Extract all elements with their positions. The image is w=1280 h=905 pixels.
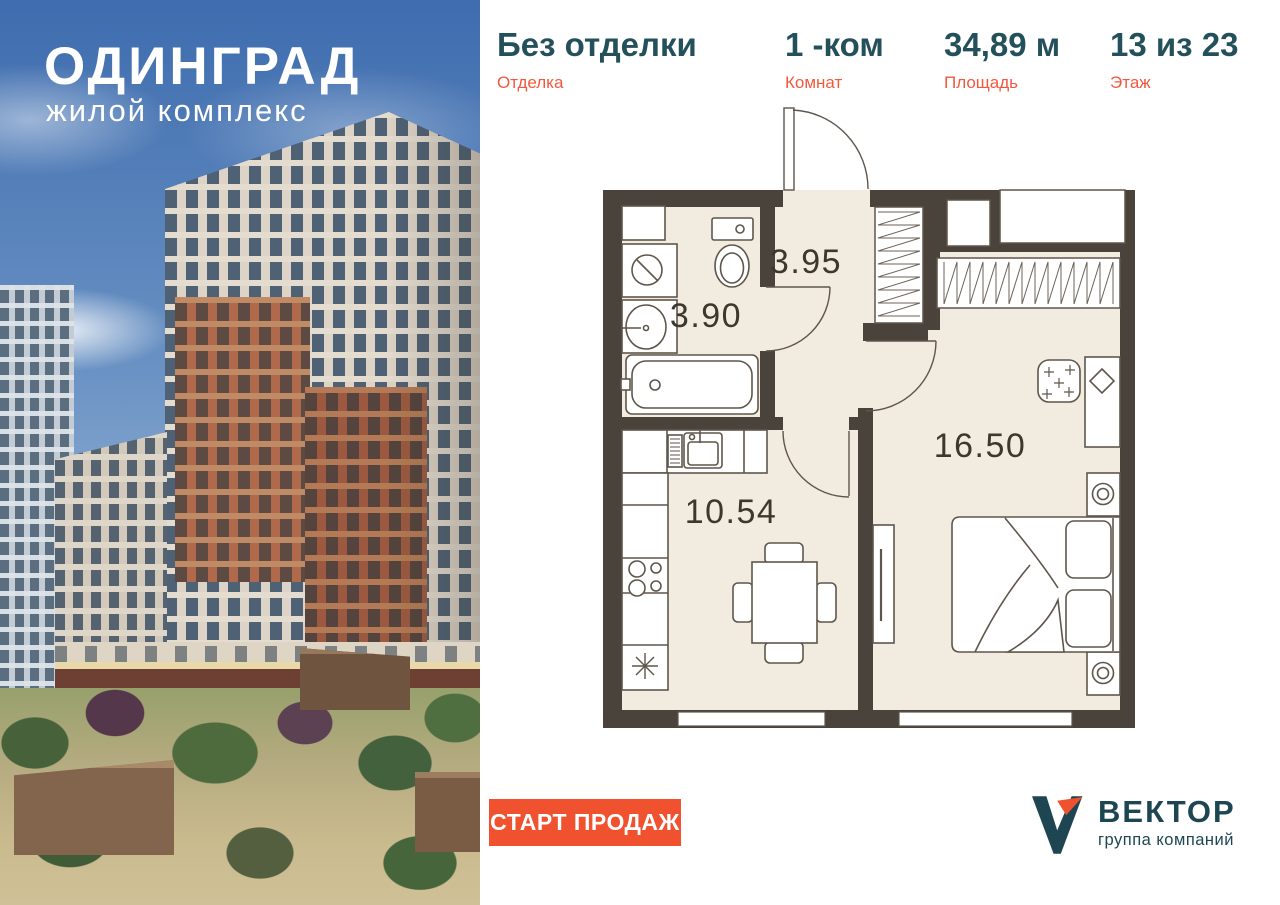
stat-rooms: 1 -ком Комнат <box>785 26 884 93</box>
kitchen-sink <box>668 429 722 468</box>
stat-floor: 13 из 23 Этаж <box>1110 26 1238 93</box>
pillow <box>1066 590 1111 647</box>
wooden-pavilion <box>300 648 410 710</box>
stat-area-label: Площадь <box>944 73 1060 93</box>
stat-rooms-label: Комнат <box>785 73 884 93</box>
bedroom-area-label: 16.50 <box>934 427 1027 465</box>
vector-logo[interactable]: ВЕКТОР группа компаний <box>1032 796 1236 854</box>
dining-table <box>752 562 817 643</box>
tv-console <box>873 525 894 643</box>
stat-area: 34,89 м Площадь <box>944 26 1060 93</box>
start-sales-button[interactable]: СТАРТ ПРОДАЖ <box>489 799 681 846</box>
facade-shadow <box>385 112 480 704</box>
nightstand-lamp-top <box>1087 473 1120 516</box>
listing-card: ОДИНГРАД жилой комплекс Без отделки Отде… <box>0 0 1280 905</box>
bathroom-area-label: 3.90 <box>670 297 742 335</box>
wooden-pavilion <box>14 760 174 855</box>
stat-rooms-value: 1 -ком <box>785 26 884 64</box>
bathroom-cabinet <box>622 206 665 240</box>
dresser-with-mirror <box>1085 357 1120 447</box>
bathtub <box>621 355 758 414</box>
main-tower <box>165 112 480 704</box>
kitchen-area-label: 10.54 <box>685 493 778 531</box>
pouf <box>1038 360 1080 402</box>
washing-machine <box>622 244 677 297</box>
nightstand-lamp-bottom <box>1087 652 1120 695</box>
hero-photo: ОДИНГРАД жилой комплекс <box>0 0 480 905</box>
vector-logo-icon <box>1032 796 1086 854</box>
vector-logo-text: ВЕКТОР группа компаний <box>1098 796 1236 850</box>
complex-subtitle: жилой комплекс <box>46 93 308 129</box>
floor-plan: 3.95 3.90 10.54 16.50 <box>595 95 1145 740</box>
pillow <box>1066 521 1111 578</box>
stat-finish: Без отделки Отделка <box>497 26 697 93</box>
bathroom-sink <box>622 300 677 353</box>
bedroom-window <box>899 712 1072 726</box>
stat-floor-label: Этаж <box>1110 73 1238 93</box>
entrance-door <box>784 108 868 190</box>
stat-floor-value: 13 из 23 <box>1110 26 1238 64</box>
hallway-area-label: 3.95 <box>770 243 842 281</box>
wooden-pavilion <box>415 772 480 852</box>
complex-title: ОДИНГРАД <box>44 36 361 97</box>
kitchen-window <box>678 712 825 726</box>
stat-area-value: 34,89 м <box>944 26 1060 64</box>
stat-finish-label: Отделка <box>497 73 697 93</box>
double-bed <box>952 517 1120 652</box>
vector-logo-name: ВЕКТОР <box>1098 796 1236 827</box>
vector-logo-tagline: группа компаний <box>1098 831 1236 850</box>
stat-finish-value: Без отделки <box>497 26 697 64</box>
facade-terracotta-block <box>175 297 310 582</box>
